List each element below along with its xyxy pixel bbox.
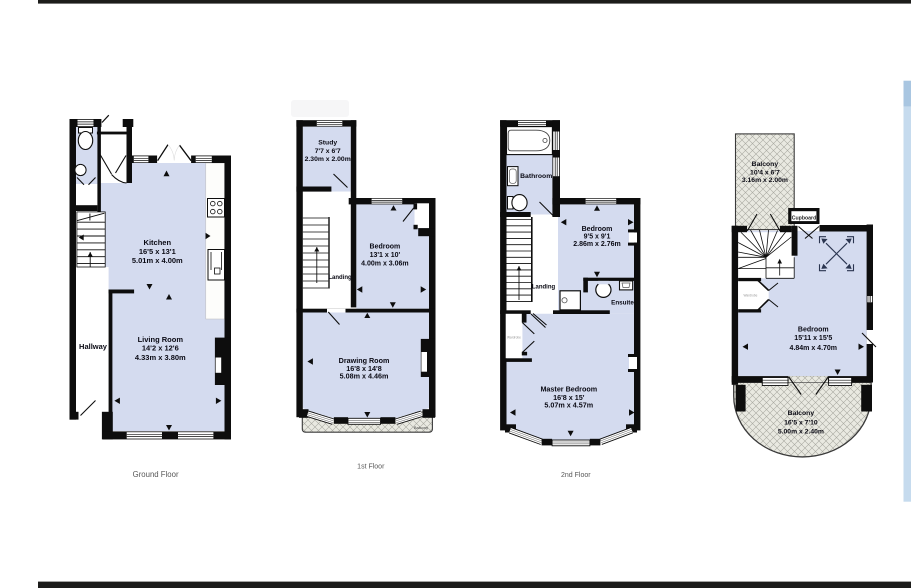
svg-text:Ensuite: Ensuite bbox=[611, 300, 634, 307]
svg-text:Bedroom: Bedroom bbox=[582, 226, 613, 233]
svg-text:Wardrobe: Wardrobe bbox=[744, 294, 758, 298]
svg-text:13'1 x 10': 13'1 x 10' bbox=[370, 252, 401, 259]
svg-text:10'4 x 6'7: 10'4 x 6'7 bbox=[750, 170, 780, 177]
svg-text:5.08m x 4.46m: 5.08m x 4.46m bbox=[340, 372, 389, 381]
svg-text:Kitchen: Kitchen bbox=[144, 238, 172, 247]
svg-text:Wardrobe: Wardrobe bbox=[507, 335, 521, 339]
svg-text:Study: Study bbox=[318, 139, 337, 146]
svg-text:4.00m x 3.06m: 4.00m x 3.06m bbox=[361, 261, 408, 268]
svg-text:Cupboard: Cupboard bbox=[792, 215, 817, 221]
svg-text:14'2 x 12'6: 14'2 x 12'6 bbox=[142, 344, 179, 353]
svg-text:15'11 x 15'5: 15'11 x 15'5 bbox=[794, 335, 832, 342]
svg-text:2.30m x 2.00m: 2.30m x 2.00m bbox=[305, 156, 351, 163]
svg-text:5.07m x 4.57m: 5.07m x 4.57m bbox=[544, 400, 593, 409]
svg-text:16'5 x 13'1: 16'5 x 13'1 bbox=[139, 247, 176, 256]
svg-text:16'5 x 7'10: 16'5 x 7'10 bbox=[784, 419, 818, 426]
svg-text:Hallway: Hallway bbox=[79, 342, 108, 351]
svg-text:Landing: Landing bbox=[328, 275, 352, 281]
svg-text:2.86m x 2.76m: 2.86m x 2.76m bbox=[573, 241, 620, 248]
svg-text:1st Floor: 1st Floor bbox=[357, 464, 385, 471]
svg-text:Balcony: Balcony bbox=[752, 161, 779, 168]
svg-text:Balcony: Balcony bbox=[414, 425, 428, 430]
svg-text:Ground Floor: Ground Floor bbox=[133, 470, 179, 479]
svg-text:Bedroom: Bedroom bbox=[798, 326, 829, 333]
svg-text:5.00m x 2.40m: 5.00m x 2.40m bbox=[778, 428, 824, 435]
svg-text:Balcony: Balcony bbox=[788, 410, 815, 417]
svg-text:3.16m x 2.00m: 3.16m x 2.00m bbox=[742, 177, 788, 184]
svg-text:Bathroom: Bathroom bbox=[520, 173, 552, 180]
svg-text:2nd Floor: 2nd Floor bbox=[561, 472, 591, 479]
svg-text:4.84m x 4.70m: 4.84m x 4.70m bbox=[790, 345, 837, 352]
svg-text:9'5 x 9'1: 9'5 x 9'1 bbox=[584, 234, 611, 241]
svg-text:7'7 x 6'7: 7'7 x 6'7 bbox=[315, 148, 341, 155]
svg-text:Bedroom: Bedroom bbox=[370, 244, 401, 251]
svg-text:5.01m x 4.00m: 5.01m x 4.00m bbox=[132, 256, 183, 265]
svg-text:Landing: Landing bbox=[532, 285, 556, 291]
svg-text:4.33m x 3.80m: 4.33m x 3.80m bbox=[135, 353, 186, 362]
